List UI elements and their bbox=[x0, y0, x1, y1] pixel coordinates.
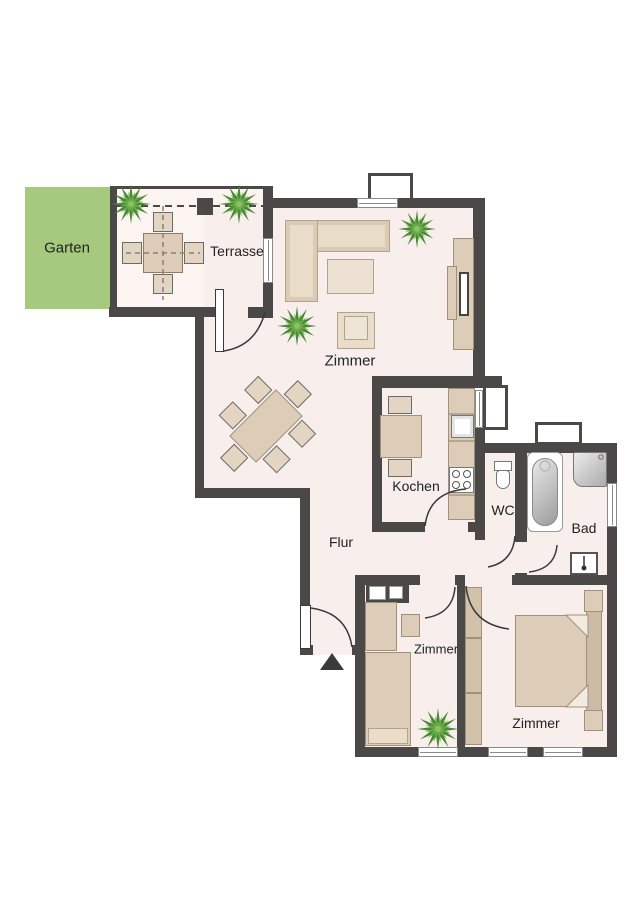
bay-window-bath bbox=[535, 422, 582, 445]
wall bbox=[263, 198, 357, 208]
wall bbox=[512, 575, 617, 585]
sofa-left bbox=[285, 220, 318, 302]
coffee-table bbox=[327, 259, 374, 294]
kitchen-sink bbox=[451, 415, 474, 438]
bed-headboard bbox=[586, 611, 602, 711]
kitchen-chair bbox=[388, 396, 412, 414]
counter-divider bbox=[449, 440, 474, 442]
terrace-post bbox=[197, 198, 213, 215]
wall bbox=[515, 453, 527, 542]
wall bbox=[515, 573, 527, 585]
nightstand bbox=[584, 590, 603, 612]
wall bbox=[607, 527, 617, 757]
kitchen-chair bbox=[388, 459, 412, 477]
shower bbox=[573, 452, 607, 487]
room-label-wc: WC bbox=[491, 502, 514, 518]
wall bbox=[355, 575, 365, 757]
wall bbox=[458, 747, 488, 757]
kitchen-table bbox=[380, 415, 422, 458]
terrace-chair bbox=[153, 212, 173, 232]
window-living bbox=[357, 198, 398, 208]
terrace-door-leaf bbox=[215, 289, 224, 352]
entrance-threshold-floor bbox=[313, 645, 352, 655]
washing-machine bbox=[570, 552, 598, 575]
wall bbox=[263, 186, 273, 238]
stove-burner bbox=[452, 481, 460, 489]
toilet-bowl bbox=[496, 470, 510, 489]
wall bbox=[455, 575, 465, 585]
window-kitchen bbox=[475, 390, 483, 428]
stove-burner bbox=[452, 470, 460, 478]
window-bedroom-large-1 bbox=[488, 747, 528, 757]
room-label-kochen: Kochen bbox=[392, 478, 439, 494]
wall bbox=[110, 187, 117, 317]
wardrobe-divider bbox=[466, 637, 481, 639]
wall bbox=[372, 522, 425, 532]
nightstand bbox=[584, 710, 603, 731]
kitchen-counter bbox=[448, 388, 475, 520]
room-label-flur: Flur bbox=[329, 534, 353, 550]
armchair-seat bbox=[344, 316, 368, 340]
room-label-zimmer-gross: Zimmer bbox=[512, 715, 559, 731]
entrance-arrow-icon bbox=[320, 653, 344, 670]
terrace-chair bbox=[122, 242, 142, 264]
terrace-table bbox=[143, 233, 183, 273]
wardrobe-divider bbox=[466, 692, 481, 694]
floor-plan: Garten Terrasse Zimmer Kochen WC Bad Flu… bbox=[0, 0, 636, 900]
room-label-garten: Garten bbox=[44, 240, 90, 257]
builtin-closet-door bbox=[389, 586, 403, 599]
nightstand-small bbox=[401, 614, 420, 637]
desk bbox=[365, 602, 397, 651]
room-label-terrasse: Terrasse bbox=[210, 243, 264, 259]
wall bbox=[583, 747, 617, 757]
bed-double bbox=[515, 615, 588, 707]
counter-divider bbox=[449, 494, 474, 496]
tv-unit bbox=[459, 272, 469, 316]
wall bbox=[195, 488, 310, 498]
wall bbox=[473, 198, 485, 380]
wall bbox=[195, 317, 204, 498]
stove-burner bbox=[463, 481, 471, 489]
window-bath bbox=[607, 483, 617, 527]
wall bbox=[352, 645, 356, 655]
bay-window-kitchen bbox=[483, 385, 508, 430]
wall bbox=[475, 530, 485, 540]
sideboard-jut bbox=[447, 266, 457, 320]
room-label-bad: Bad bbox=[572, 520, 597, 536]
room-label-zimmer-klein: Zimmer bbox=[414, 642, 458, 657]
bathtub-inner bbox=[532, 458, 558, 526]
wardrobe bbox=[465, 587, 482, 745]
window-bedroom-large-2 bbox=[543, 747, 583, 757]
builtin-closet-door bbox=[369, 586, 386, 600]
terrace-chair bbox=[184, 242, 204, 264]
window-terrace bbox=[263, 238, 273, 283]
wall bbox=[607, 453, 617, 483]
stove-burner bbox=[463, 470, 471, 478]
wall bbox=[109, 307, 217, 317]
wall bbox=[528, 747, 543, 757]
bed-single-pillow bbox=[368, 728, 408, 744]
wall bbox=[110, 186, 265, 189]
wall bbox=[398, 198, 485, 208]
window-bedroom-small bbox=[418, 747, 458, 757]
room-label-wohnzimmer: Zimmer bbox=[325, 353, 376, 370]
wall bbox=[263, 283, 273, 318]
wall bbox=[457, 585, 465, 747]
wall bbox=[372, 376, 502, 388]
terrace-chair bbox=[153, 274, 173, 294]
entrance-door-leaf bbox=[300, 605, 311, 649]
